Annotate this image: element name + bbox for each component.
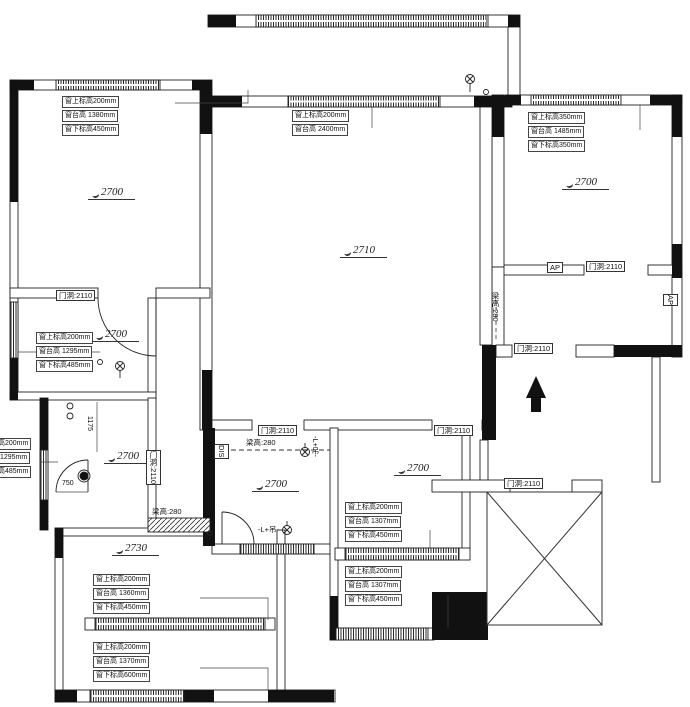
dimension-750: 750: [62, 480, 74, 487]
window-annotation-bottom-mid-lower: 窗上标高200mm 窗台高 1307mm 窗下标高450mm: [345, 566, 402, 606]
door-label: 门洞:2110: [434, 425, 473, 436]
window-annotation-bottom-mid-upper: 窗上标高200mm 窗台高 1307mm 窗下标高450mm: [345, 502, 402, 542]
annotation-line: 窗下标高450mm: [345, 530, 402, 542]
light-label: -L+吊-: [258, 525, 279, 534]
elevator-shaft: [487, 492, 602, 625]
window-annotation-bottom-left-lower: 窗上标高200mm 窗台高 1370mm 窗下标高600mm: [93, 642, 150, 682]
annotation-line: 窗上标高200mm: [345, 502, 402, 514]
annotation-line: 窗台高 1307mm: [345, 580, 401, 592]
room-height-living-room: 2710: [340, 244, 387, 258]
door-label: 门洞:2110: [258, 425, 297, 436]
door-label: 门洞:2110: [514, 343, 553, 354]
window-annotation-mid-left: 窗上标高200mm 窗台高 1295mm 窗下标高485mm: [36, 332, 93, 372]
room-height-bottom-mid-small-room: 2700: [252, 478, 299, 492]
annotation-line: 窗台高 1295mm: [36, 346, 92, 358]
annotation-line: 窗台高 1360mm: [93, 588, 149, 600]
annotation-line: 窗上标高350mm: [528, 112, 585, 124]
beam-label: 梁高:280: [246, 438, 276, 447]
ap-panel-label-vertical: AP: [663, 294, 678, 306]
door-label: 门洞:2110: [56, 290, 95, 301]
entry-arrow: [526, 376, 546, 412]
annotation-line: 窗上标高200mm: [36, 332, 93, 344]
dis-box-label: DIS: [214, 444, 229, 459]
annotation-line: 窗下标高485mm: [0, 466, 31, 478]
room-height-lower-left-room: 2700: [104, 450, 151, 464]
socket-icon: [67, 403, 73, 409]
window-annotation-top-right: 窗上标高350mm 窗台高 1485mm 窗下标高350mm: [528, 112, 585, 152]
annotation-line: 窗下标高600mm: [93, 670, 150, 682]
dimension-1175: 1175: [86, 416, 93, 431]
beam-label: 梁高:280: [152, 507, 182, 516]
annotation-line: 窗上标高200mm: [93, 642, 150, 654]
annotation-line: 窗下标高485mm: [36, 360, 93, 372]
annotation-line: 窗上标高200mm: [93, 574, 150, 586]
annotation-line: 窗台高 1295mm: [0, 452, 30, 464]
annotation-line: 窗下标高450mm: [62, 124, 119, 136]
beam-label-vertical: 梁高:280: [491, 292, 500, 322]
annotation-line: 窗上标高200mm: [292, 110, 349, 122]
socket-icon: [484, 90, 489, 95]
annotation-line: 窗台高 2400mm: [292, 124, 348, 136]
window-annotation-top-left: 窗上标高200mm 窗台高 1380mm 窗下标高450mm: [62, 96, 119, 136]
light-label-vertical: -L+吊-: [311, 436, 320, 457]
door-label-vertical: 门洞:2110: [146, 450, 161, 485]
annotation-line: 窗台高 1370mm: [93, 656, 149, 668]
window-annotation-living-top: 窗上标高200mm 窗台高 2400mm: [292, 110, 349, 136]
room-height-bottom-mid-room: 2700: [394, 462, 441, 476]
annotation-line: 窗上标高200mm: [0, 438, 31, 450]
annotation-line: 窗台高 1307mm: [345, 516, 401, 528]
lamp-icon: [116, 362, 125, 379]
room-height-top-right-bedroom: 2700: [562, 176, 609, 190]
room-height-bottom-left-room: 2730: [112, 542, 159, 556]
socket-icon: [67, 413, 73, 419]
room-height-mid-left-room: 2700: [92, 328, 139, 342]
socket-icon: [98, 360, 103, 365]
annotation-line: 窗下标高450mm: [93, 602, 150, 614]
floor-plan: 2700 2710 2700 2700 2700 2730 2700 2700 …: [0, 0, 690, 707]
lamp-icon: [78, 470, 90, 482]
annotation-line: 窗上标高200mm: [345, 566, 402, 578]
annotation-line: 窗台高 1380mm: [62, 110, 118, 122]
annotation-line: 窗上标高200mm: [62, 96, 119, 108]
window-annotation-bottom-left-upper: 窗上标高200mm 窗台高 1360mm 窗下标高450mm: [93, 574, 150, 614]
door-label: 门洞:2110: [504, 478, 543, 489]
window-annotation-left-edge: 窗上标高200mm 窗台高 1295mm 窗下标高485mm: [0, 438, 31, 478]
annotation-line: 窗下标高450mm: [345, 594, 402, 606]
lamp-icon: [466, 75, 475, 93]
annotation-line: 窗台高 1485mm: [528, 126, 584, 138]
annotation-line: 窗下标高350mm: [528, 140, 585, 152]
door-label: 门洞:2110: [586, 261, 625, 272]
room-height-top-left-bedroom: 2700: [88, 186, 135, 200]
ap-panel-label: AP: [547, 262, 563, 273]
